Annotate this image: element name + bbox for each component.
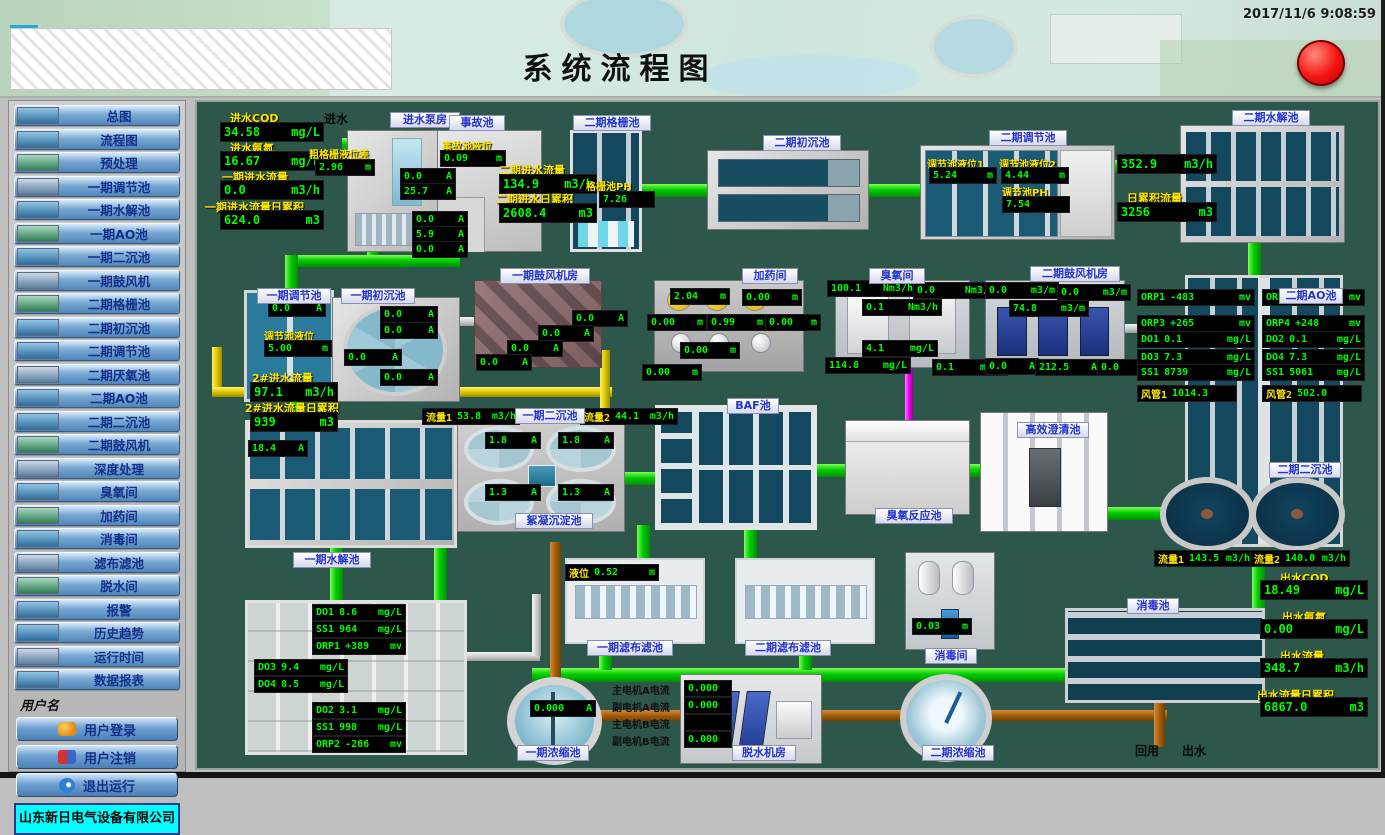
plate-clarifier[interactable]: 高效澄清池	[1017, 422, 1089, 438]
measure-value: 114.8mg/L	[825, 357, 911, 374]
measure-value: ORP2-266mv	[312, 736, 406, 753]
stat-value: 624.0m3	[220, 210, 324, 230]
measure-value: 风管11014.3	[1137, 385, 1237, 402]
thumbnail-icon	[17, 601, 59, 618]
plate-p1-secondary[interactable]: 一期二沉池	[515, 408, 585, 424]
plate-accident-pool[interactable]: 事故池	[449, 115, 505, 131]
thumbnail-icon	[17, 483, 59, 500]
thumbnail-icon	[17, 436, 59, 453]
timestamp: 2017/11/6 9:08:59	[1243, 7, 1376, 22]
plate-dewatering[interactable]: 脱水机房	[732, 745, 796, 761]
thumbnail-icon	[17, 507, 59, 524]
blank-panel	[10, 28, 392, 90]
measure-value: 0.0A	[412, 241, 468, 258]
outflow-text: 出水	[1182, 742, 1206, 759]
screen-edge	[1381, 0, 1385, 778]
measure-value: SS18739mg/L	[1137, 364, 1255, 381]
pipe	[744, 527, 757, 562]
sidebar-item-runtime[interactable]: 运行时间	[14, 646, 180, 667]
thumbnail-icon	[17, 577, 59, 594]
measure-value: 4.1mg/L	[862, 340, 938, 357]
sidebar-item-alarms[interactable]: 报警	[14, 599, 180, 620]
logout-button[interactable]: 用户注销	[16, 745, 178, 769]
pipe	[550, 542, 561, 684]
measure-value: 0.0A	[344, 349, 402, 366]
header-banner: 系统流程图 2017/11/6 9:08:59	[0, 0, 1385, 98]
measure-value: 7.26	[599, 191, 655, 208]
exit-button[interactable]: 退出运行	[16, 773, 178, 797]
sidebar-item-dewatering[interactable]: 脱水间	[14, 575, 180, 596]
reuse-text: 回用	[1135, 742, 1159, 759]
plate-p2-primary[interactable]: 二期初沉池	[763, 135, 841, 151]
thumbnail-icon	[17, 648, 59, 665]
sidebar-item-p2-ao[interactable]: 二期AO池	[14, 387, 180, 408]
sidebar: 总图 流程图 预处理 一期调节池 一期水解池 一期AO池 一期二沉池 一期鼓风机…	[8, 100, 186, 772]
sidebar-item-p1-secondary[interactable]: 一期二沉池	[14, 246, 180, 267]
measure-value	[684, 714, 732, 731]
pipe	[624, 472, 657, 485]
measure-value: 0.00m	[742, 289, 802, 306]
measure-value: 1.8A	[485, 432, 541, 449]
stat-value: 34.58mg/L	[220, 122, 324, 142]
thumbnail-icon	[17, 460, 59, 477]
plate-p2-blower[interactable]: 二期鼓风机房	[1030, 266, 1120, 282]
thumbnail-icon	[17, 342, 59, 359]
measure-value: 0.0A	[380, 322, 438, 339]
sidebar-item-p1-regulating[interactable]: 一期调节池	[14, 176, 180, 197]
measure-value: 流量2140.0m3/h	[1250, 550, 1350, 567]
sidebar-item-p2-primary[interactable]: 二期初沉池	[14, 317, 180, 338]
thumbnail-icon	[17, 201, 59, 218]
measure-value: 18.4A	[248, 440, 308, 457]
exit-run-icon	[59, 778, 75, 793]
plate-p2-filter[interactable]: 二期滤布滤池	[745, 640, 831, 656]
measure-value: 352.9m3/h	[1117, 154, 1217, 174]
user-logout-icon	[58, 750, 76, 764]
plate-p2-thickener[interactable]: 二期浓缩池	[922, 745, 994, 761]
measure-value: ORP3+265mv	[1137, 315, 1255, 332]
company-name: 山东新日电气设备有限公司	[14, 803, 180, 835]
pipe	[532, 594, 541, 656]
measure-value: 97.1m3/h	[250, 382, 338, 402]
plate-p2-ao[interactable]: 二期AO池	[1279, 288, 1343, 304]
banner-photo-shape	[1160, 40, 1385, 96]
plate-ozone-room[interactable]: 臭氧间	[869, 268, 925, 284]
sidebar-item-p2-regulating[interactable]: 二期调节池	[14, 340, 180, 361]
sidebar-item-p1-hydrolysis[interactable]: 一期水解池	[14, 199, 180, 220]
thumbnail-icon	[17, 389, 59, 406]
measure-value: DO48.5mg/L	[254, 676, 348, 693]
measure-value: 0.00m	[647, 314, 707, 331]
plate-p1-hydrolysis[interactable]: 一期水解池	[293, 552, 371, 568]
pipe	[1102, 507, 1162, 520]
thumbnail-icon	[17, 295, 59, 312]
measure-value: DO10.1mg/L	[1137, 331, 1255, 348]
sidebar-item-history-trend[interactable]: 历史趋势	[14, 622, 180, 643]
sidebar-item-flowchart[interactable]: 流程图	[14, 129, 180, 150]
sidebar-item-cloth-filter[interactable]: 滤布滤池	[14, 552, 180, 573]
measure-value: DO18.6mg/L	[312, 604, 406, 621]
measure-value: 1.3A	[558, 484, 614, 501]
sidebar-item-advanced-treatment[interactable]: 深度处理	[14, 458, 180, 479]
plate-disinfect-room[interactable]: 消毒间	[925, 648, 977, 664]
plate-ozone-reactor[interactable]: 臭氧反应池	[875, 508, 953, 524]
stat-value: 0.0m3/h	[220, 180, 324, 200]
plate-dosing-room[interactable]: 加药间	[742, 268, 798, 284]
sidebar-item-disinfect-room[interactable]: 消毒间	[14, 528, 180, 549]
measure-value: 0.000A	[530, 700, 596, 717]
thumbnail-icon	[17, 154, 59, 171]
measure-value: 0.03m	[912, 618, 972, 635]
alarm-indicator-button[interactable]	[1297, 40, 1345, 86]
sidebar-item-p2-secondary[interactable]: 二期二沉池	[14, 411, 180, 432]
plate-p1-regulating[interactable]: 一期调节池	[257, 288, 331, 304]
thumbnail-icon	[17, 413, 59, 430]
measure-value: 0.0A	[985, 358, 1039, 375]
motor-label: 主电机A电流	[612, 682, 670, 697]
pipe	[987, 710, 1167, 721]
measure-value: ORP1+389mv	[312, 638, 406, 655]
pipe	[864, 184, 924, 197]
measure-value: 7.54	[1002, 196, 1070, 213]
measure-value: SS1964mg/L	[312, 621, 406, 638]
p2-primary-pool-graphic[interactable]	[707, 150, 869, 230]
sidebar-item-dosing-room[interactable]: 加药间	[14, 505, 180, 526]
thumbnail-icon	[17, 366, 59, 383]
measure-value: 0.0A	[476, 354, 532, 371]
plate-baf[interactable]: BAF池	[727, 398, 779, 414]
stat-value: 0.00mg/L	[1260, 619, 1368, 639]
thumbnail-icon	[17, 248, 59, 265]
thumbnail-icon	[17, 624, 59, 641]
measure-value: 3256m3	[1117, 202, 1217, 222]
p2-filter-pool-graphic[interactable]	[735, 558, 875, 644]
measure-value: 2.04m	[670, 288, 730, 305]
flow-diagram: 进水 回用 出水 进水泵房 事故池 二期格栅池 二期初沉池 二期调节池 二期水解…	[195, 100, 1380, 770]
plate-p1-filter[interactable]: 一期滤布滤池	[587, 640, 673, 656]
thumbnail-icon	[17, 131, 59, 148]
sidebar-item-overview[interactable]: 总图	[14, 105, 180, 126]
username-label: 用户名	[20, 695, 182, 714]
measure-value: 0.000	[684, 680, 732, 697]
login-button[interactable]: 用户登录	[16, 717, 178, 741]
sidebar-item-p1-blower[interactable]: 一期鼓风机	[14, 270, 180, 291]
measure-value: 0.000	[684, 731, 732, 748]
sidebar-item-ozone-room[interactable]: 臭氧间	[14, 481, 180, 502]
p2-secondary-tank2-graphic[interactable]	[1250, 477, 1345, 552]
sidebar-item-data-report[interactable]: 数据报表	[14, 669, 180, 690]
measure-value: 0.1Nm3/h	[862, 299, 942, 316]
measure-value: 939m3	[250, 412, 338, 432]
plate-floc-pool[interactable]: 絮凝沉淀池	[515, 513, 593, 529]
plate-p2-grid[interactable]: 二期格栅池	[573, 115, 651, 131]
baf-pool-graphic[interactable]	[655, 405, 817, 530]
measure-value: 0.00m	[680, 342, 740, 359]
measure-value: 0.00m	[642, 364, 702, 381]
measure-value: 74.8m3/m	[1009, 300, 1089, 317]
thumbnail-icon	[17, 671, 59, 688]
measure-value: DO23.1mg/L	[312, 702, 406, 719]
p2-hydrolysis-pool-graphic[interactable]	[1180, 125, 1345, 243]
thumbnail-icon	[17, 178, 59, 195]
measure-value: 5.00m	[264, 340, 332, 357]
p2-secondary-tank1-graphic[interactable]	[1160, 477, 1255, 552]
disinfect-room-graphic[interactable]	[905, 552, 995, 650]
plate-p1-blower[interactable]: 一期鼓风机房	[500, 268, 590, 284]
thumbnail-icon	[17, 554, 59, 571]
motor-label: 主电机B电流	[612, 716, 670, 731]
user-login-icon	[58, 722, 76, 736]
disinfect-pool-graphic[interactable]	[1065, 608, 1265, 703]
measure-value: 0.0m3/m	[985, 282, 1059, 299]
measure-value: ORP1-483mv	[1137, 289, 1255, 306]
motor-label: 副电机B电流	[612, 733, 670, 748]
sidebar-item-p2-blower[interactable]: 二期鼓风机	[14, 434, 180, 455]
thumbnail-icon	[17, 319, 59, 336]
pipe	[814, 464, 847, 477]
stat-value: 18.49mg/L	[1260, 580, 1368, 600]
measure-value: SS15061mg/L	[1262, 364, 1365, 381]
measure-value: 流量244.1m3/h	[580, 408, 678, 425]
measure-value: 5.24m	[929, 167, 997, 184]
measure-value: DO39.4mg/L	[254, 659, 348, 676]
measure-value: 0.0A	[380, 369, 438, 386]
pipe	[1154, 702, 1165, 747]
page-title: 系统流程图	[455, 44, 785, 88]
measure-value: 2608.4m3	[499, 203, 597, 223]
sidebar-item-p2-anaerobic[interactable]: 二期厌氧池	[14, 364, 180, 385]
measure-value: 0.00m	[765, 314, 821, 331]
plate-p2-regulating[interactable]: 二期调节池	[989, 130, 1067, 146]
measure-value: 2.96m	[315, 159, 375, 176]
banner-photo-shape	[930, 15, 1018, 78]
measure-value: 0.000	[684, 697, 732, 714]
measure-value: 1.3A	[485, 484, 541, 501]
screen-edge	[0, 772, 1385, 778]
thumbnail-icon	[17, 107, 59, 124]
measure-value: 4.44m	[1001, 167, 1069, 184]
measure-value: DO20.1mg/L	[1262, 331, 1365, 348]
ozone-reactor-graphic[interactable]	[845, 420, 970, 515]
measure-value: ORP4+248mv	[1262, 315, 1365, 332]
pipe	[817, 710, 905, 721]
measure-value: 212.5A	[1035, 359, 1101, 376]
measure-value: 25.7A	[400, 183, 456, 200]
thumbnail-icon	[17, 272, 59, 289]
sidebar-item-p1-ao[interactable]: 一期AO池	[14, 223, 180, 244]
plate-p1-primary[interactable]: 一期初沉池	[341, 288, 415, 304]
inflow-text: 进水	[324, 110, 348, 127]
measure-value: 0.0m3/m	[1057, 284, 1131, 301]
sidebar-item-pretreatment[interactable]: 预处理	[14, 152, 180, 173]
stat-value: 6867.0m3	[1260, 697, 1368, 717]
plate-p2-secondary[interactable]: 二期二沉池	[1269, 462, 1341, 478]
measure-value: 0.09m	[440, 150, 506, 167]
stat-value: 348.7m3/h	[1260, 658, 1368, 678]
plate-disinfect-pool[interactable]: 消毒池	[1127, 598, 1179, 614]
motor-label: 副电机A电流	[612, 699, 670, 714]
thumbnail-icon	[17, 225, 59, 242]
sidebar-item-p2-grid[interactable]: 二期格栅池	[14, 293, 180, 314]
plate-p1-thickener[interactable]: 一期浓缩池	[517, 745, 589, 761]
measure-value: 1.8A	[558, 432, 614, 449]
thumbnail-icon	[17, 530, 59, 547]
measure-value: SS1998mg/L	[312, 719, 406, 736]
measure-value: 0.0A	[380, 306, 438, 323]
measure-value: 流量153.8m3/h	[422, 408, 520, 425]
measure-value: 0.99m	[707, 314, 767, 331]
measure-value: 流量1143.5m3/h	[1154, 550, 1254, 567]
measure-value: 风管2502.0	[1262, 385, 1362, 402]
plate-p2-hydrolysis[interactable]: 二期水解池	[1232, 110, 1310, 126]
measure-value: 液位0.52m	[565, 564, 659, 581]
